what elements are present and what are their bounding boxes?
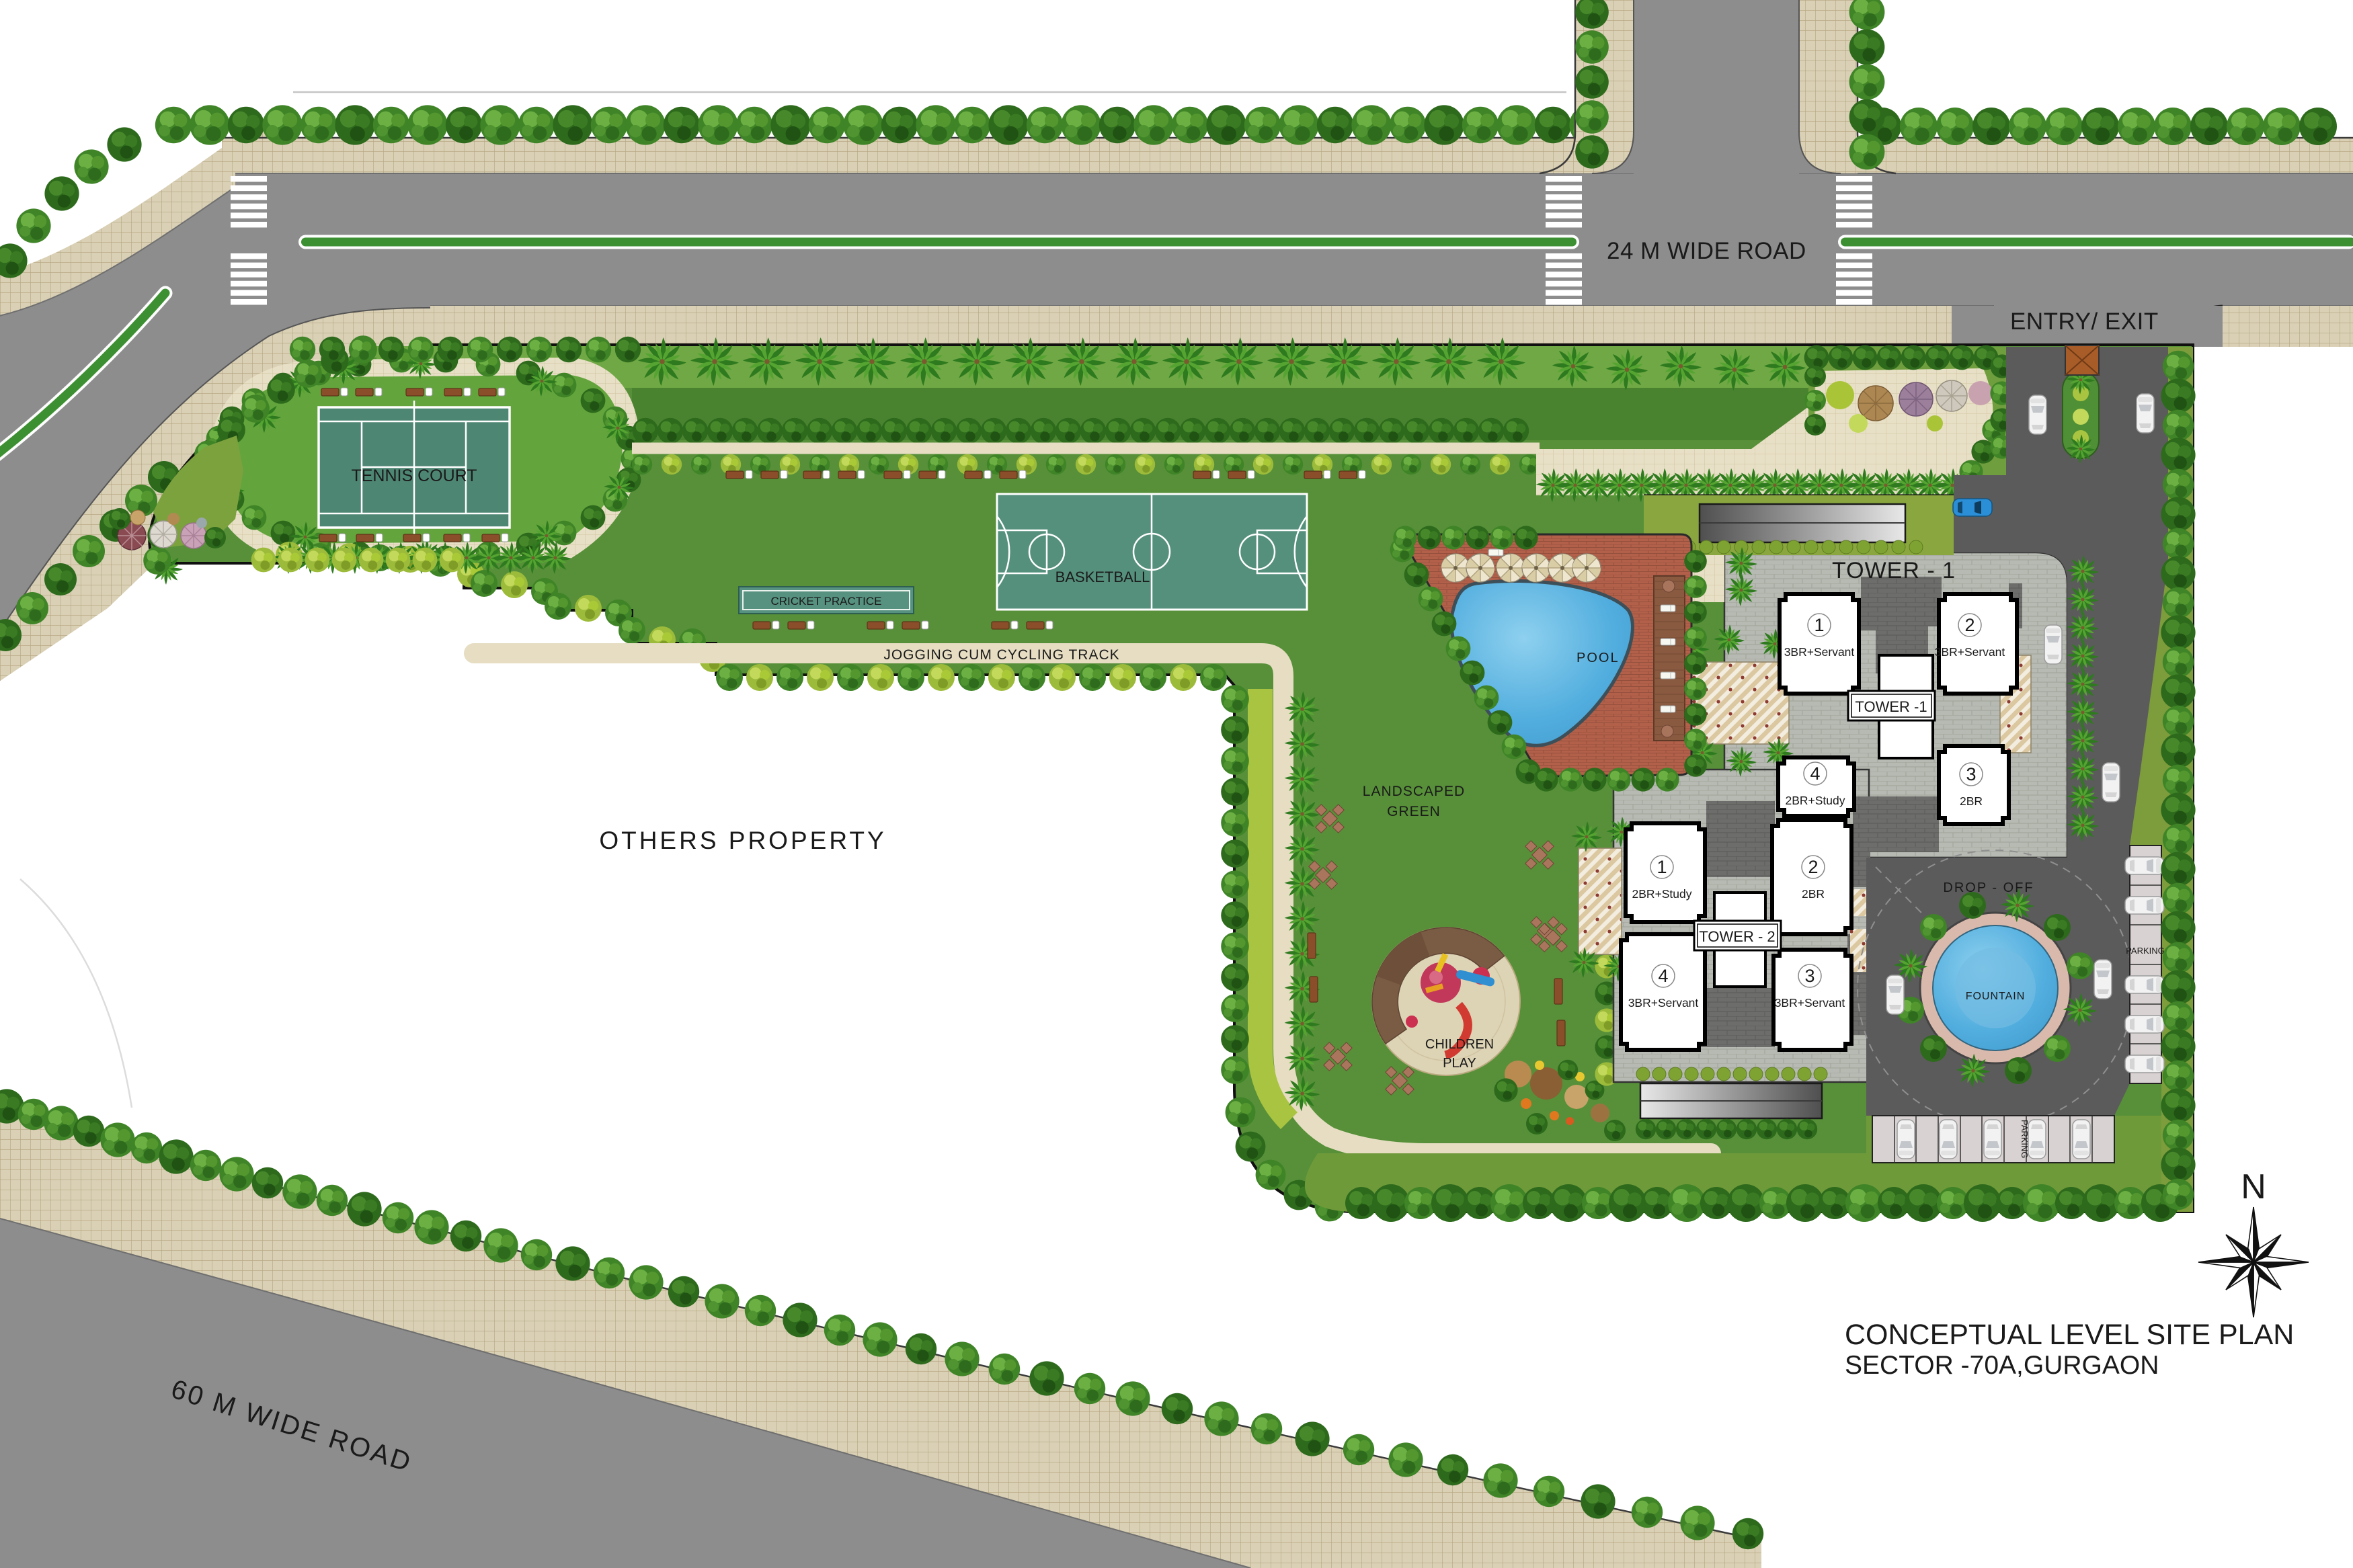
svg-text:CRICKET PRACTICE: CRICKET PRACTICE	[771, 595, 882, 608]
svg-text:JOGGING CUM CYCLING TRACK: JOGGING CUM CYCLING TRACK	[883, 647, 1119, 663]
svg-text:FOUNTAIN: FOUNTAIN	[1966, 991, 2026, 1002]
svg-text:OTHERS PROPERTY: OTHERS PROPERTY	[599, 827, 886, 854]
svg-text:3: 3	[1966, 764, 1976, 784]
svg-text:3BR+Servant: 3BR+Servant	[1628, 996, 1699, 1009]
svg-text:ENTRY/ EXIT: ENTRY/ EXIT	[2010, 308, 2159, 335]
svg-text:1: 1	[1657, 857, 1667, 877]
svg-text:4: 4	[1810, 764, 1820, 784]
svg-text:3BR+Servant: 3BR+Servant	[1784, 645, 1855, 659]
svg-text:2BR+Study: 2BR+Study	[1632, 887, 1691, 901]
svg-text:N: N	[2241, 1167, 2266, 1206]
svg-text:BASKETBALL: BASKETBALL	[1055, 569, 1150, 585]
svg-text:CONCEPTUAL LEVEL SITE PLAN: CONCEPTUAL LEVEL SITE PLAN	[1845, 1319, 2294, 1351]
svg-text:1: 1	[1814, 615, 1824, 635]
svg-text:DROP - OFF: DROP - OFF	[1943, 880, 2034, 895]
svg-text:2BR: 2BR	[1960, 794, 1983, 808]
svg-text:3BR+Servant: 3BR+Servant	[1935, 645, 2005, 659]
svg-text:SECTOR -70A,GURGAON: SECTOR -70A,GURGAON	[1845, 1351, 2159, 1380]
svg-text:PLAY: PLAY	[1443, 1056, 1476, 1071]
svg-text:4: 4	[1658, 966, 1668, 986]
svg-text:TOWER - 2: TOWER - 2	[1699, 928, 1775, 945]
svg-text:PARKING: PARKING	[2020, 1120, 2030, 1159]
svg-text:3: 3	[1804, 966, 1814, 986]
svg-text:2: 2	[1808, 857, 1818, 877]
svg-text:TENNIS COURT: TENNIS COURT	[351, 466, 477, 485]
svg-text:2BR+Study: 2BR+Study	[1785, 794, 1845, 807]
svg-text:TOWER -1: TOWER -1	[1855, 698, 1927, 715]
svg-text:2BR: 2BR	[1802, 887, 1825, 901]
svg-text:2: 2	[1964, 615, 1975, 635]
svg-text:LANDSCAPED: LANDSCAPED	[1363, 784, 1465, 799]
svg-text:24 M WIDE ROAD: 24 M WIDE ROAD	[1607, 238, 1806, 264]
svg-text:POOL: POOL	[1577, 651, 1620, 665]
svg-text:GREEN: GREEN	[1387, 804, 1441, 819]
svg-text:TOWER - 1: TOWER - 1	[1832, 558, 1956, 583]
svg-text:PARKING: PARKING	[2126, 946, 2165, 956]
svg-text:3BR+Servant: 3BR+Servant	[1775, 996, 1845, 1009]
svg-text:CHILDREN: CHILDREN	[1425, 1037, 1494, 1052]
